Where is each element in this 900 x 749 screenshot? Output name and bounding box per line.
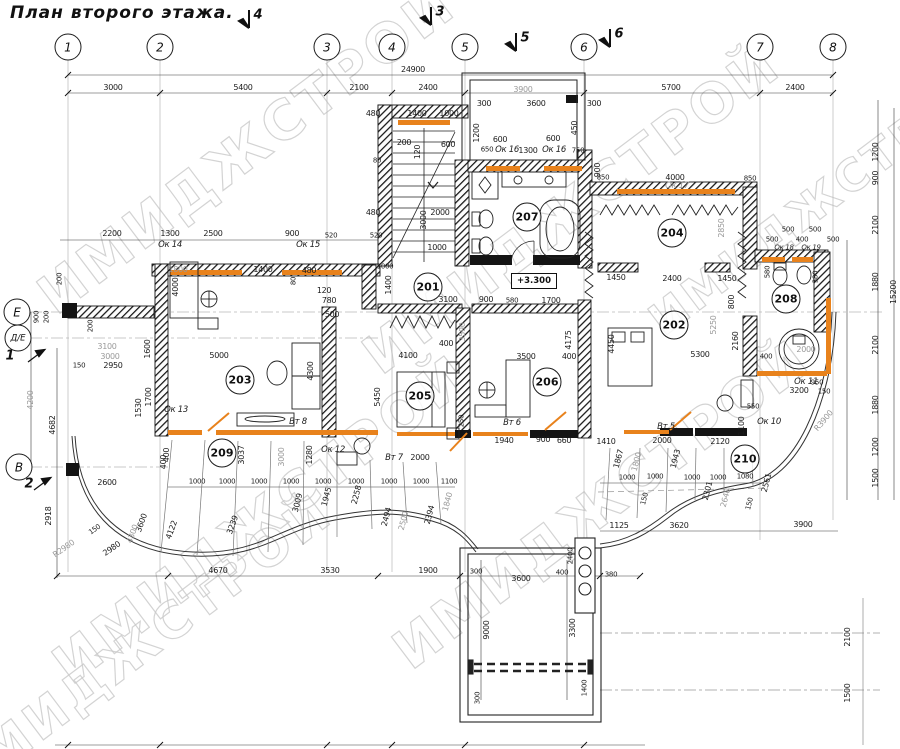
dim-label: 1600 <box>144 339 152 358</box>
dim-label: 2301 <box>702 481 715 502</box>
dim-label: 400 <box>760 354 772 361</box>
dim-label: 9000 <box>483 620 491 639</box>
dim-label: 2561 <box>761 473 774 494</box>
dim-label: 1000 <box>189 479 206 486</box>
dim-label: 4682 <box>49 415 57 434</box>
dim-label: 200 <box>57 273 64 285</box>
dim-label: 2400 <box>662 275 681 283</box>
room-number-202: 202 <box>660 311 689 340</box>
dim-label: 80 <box>373 158 381 165</box>
dim-label: 300 <box>477 100 491 108</box>
dim-label: 5400 <box>233 84 252 92</box>
fixture-label: Вт 6 <box>503 419 521 428</box>
room-number-201: 201 <box>414 273 443 302</box>
section-mark-4: 4 <box>253 8 262 23</box>
dim-label: 900 <box>34 311 41 323</box>
dim-label: 150 <box>640 492 650 506</box>
dim-label: 500 <box>827 237 839 244</box>
dim-label: 1450 <box>717 275 736 283</box>
dim-label: 400 <box>163 448 171 462</box>
dim-label: 5000 <box>209 352 228 360</box>
dim-label: 3239 <box>226 515 240 536</box>
dim-label: 500 <box>325 311 339 319</box>
dim-label: 1410 <box>596 438 615 446</box>
dim-label: 1080 <box>737 474 754 481</box>
dim-label: 1000 <box>619 475 636 482</box>
grid-axis-3: 3 <box>314 34 341 61</box>
dim-label: 1940 <box>494 437 513 445</box>
dim-label: 2850 <box>718 218 726 237</box>
dim-label: 2100 <box>872 215 880 234</box>
dim-label: 3900 <box>513 86 532 94</box>
fixture-label: Ок 13 <box>164 406 188 415</box>
dim-label: 660 <box>557 437 571 445</box>
dim-label: 1000 <box>684 475 701 482</box>
dim-label: 3100 <box>438 296 457 304</box>
fixture-label: Ок 17 <box>665 182 689 191</box>
dim-label: 120 <box>414 145 422 159</box>
dim-label: 4000 <box>172 277 180 296</box>
dim-label: 2200 <box>102 230 121 238</box>
dim-label: 1000 <box>710 475 727 482</box>
dim-label: 250 <box>459 415 466 427</box>
dim-label: 4175 <box>565 330 573 349</box>
room-number-206: 206 <box>533 368 562 397</box>
dim-label: 2160 <box>732 331 740 350</box>
dim-label: 900 <box>536 436 550 444</box>
dim-label: 2500 <box>398 511 411 532</box>
room-number-204: 204 <box>658 219 687 248</box>
dim-label: 4670 <box>208 567 227 575</box>
dim-label: 200 <box>44 311 51 323</box>
dim-label: 1500 <box>844 683 852 702</box>
dim-label: 400 <box>796 237 808 244</box>
dim-label: 450 <box>571 121 579 135</box>
dim-label: 2100 <box>844 627 852 646</box>
dim-label: 3037 <box>238 445 246 464</box>
grid-axis-Е: Е <box>4 299 31 326</box>
room-number-205: 205 <box>406 382 435 411</box>
dim-label: 2918 <box>45 506 53 525</box>
grid-axis-2: 2 <box>147 34 174 61</box>
fixture-label: Ок 18 <box>774 245 793 252</box>
dim-label: 1000 <box>413 479 430 486</box>
dim-label: 1000 <box>251 479 268 486</box>
dim-label: 5250 <box>710 315 718 334</box>
dim-label: R3900 <box>813 409 835 433</box>
dim-label: 1700 <box>145 387 153 406</box>
dim-label: 900 <box>872 171 880 185</box>
dim-label: 1100 <box>441 479 458 486</box>
dim-label: 1800 <box>168 266 187 274</box>
dim-label: 2000 <box>796 346 815 354</box>
dim-label: 150 <box>745 497 755 511</box>
grid-axis-8: 8 <box>820 34 847 61</box>
dim-label: 480 <box>366 110 380 118</box>
dim-label: 1200 <box>872 142 880 161</box>
dim-label: 1200 <box>872 437 880 456</box>
dim-label: 380 <box>813 271 820 283</box>
dim-label: 580 <box>506 298 518 305</box>
dim-label: 1000 <box>219 479 236 486</box>
dim-label: 1000 <box>283 479 300 486</box>
grid-axis-1: 1 <box>55 34 82 61</box>
dim-label: 780 <box>322 297 336 305</box>
dim-label: 1500 <box>872 468 880 487</box>
fixture-label: Ок 11 <box>794 378 818 387</box>
dim-label: 4200 <box>27 390 35 409</box>
dim-label: 2400 <box>418 84 437 92</box>
dim-label: 2394 <box>424 505 437 526</box>
dim-label: 2100 <box>349 84 368 92</box>
dim-label: 1400 <box>385 275 393 294</box>
room-number-207: 207 <box>513 203 542 232</box>
dim-label: 300 <box>587 100 601 108</box>
dim-label: 2400 <box>785 84 804 92</box>
dim-label: 3009 <box>292 493 305 514</box>
dim-label: 200 <box>397 139 411 147</box>
dim-label: 500 <box>782 227 794 234</box>
dim-label: 15200 <box>890 280 898 304</box>
dim-label: 1125 <box>609 522 628 530</box>
fixture-label: Вт 5 <box>657 423 675 432</box>
dim-label: 900 <box>479 296 493 304</box>
dim-label: 1100 <box>738 416 746 435</box>
dim-label: 550 <box>747 404 759 411</box>
dim-label: 5300 <box>690 351 709 359</box>
dim-label: 4300 <box>126 524 140 545</box>
dim-label: 1840 <box>442 492 455 513</box>
grid-axis-4: 4 <box>379 34 406 61</box>
dim-label: 3600 <box>511 575 530 583</box>
dim-label: 2500 <box>203 230 222 238</box>
dim-label: 850 <box>744 176 756 183</box>
dim-label: 300 <box>470 569 482 576</box>
dim-label: 1000 <box>377 264 394 271</box>
dim-label: 2000 <box>410 454 429 462</box>
dim-label: 300 <box>475 692 482 704</box>
labels-layer: 2490030005400210024005700240039003003600… <box>0 0 900 749</box>
dim-label: 4122 <box>165 520 179 541</box>
dim-label: 4450 <box>608 334 616 353</box>
dim-label: 5450 <box>374 387 382 406</box>
dim-label: 1700 <box>541 297 560 305</box>
dim-label: 1000 <box>647 474 664 481</box>
dim-label: 2000 <box>430 209 449 217</box>
dim-label: 4300 <box>307 361 315 380</box>
fixture-label: Ок 19 <box>801 245 820 252</box>
fixture-label: Ок 10 <box>757 418 781 427</box>
fixture-label: Ок 16 <box>542 146 566 155</box>
floor-plan-page: ИМИДЖСТРОЙ ИМИДЖСТРОЙ ИМИДЖСТРОЙ ИМИДЖСТ… <box>0 0 900 749</box>
dim-label: 3000 <box>103 84 122 92</box>
dim-label: 400 <box>556 570 568 577</box>
dim-label: 1900 <box>418 567 437 575</box>
grid-axis-5: 5 <box>452 34 479 61</box>
dim-label: 4100 <box>398 352 417 360</box>
dim-label: 900 <box>285 230 299 238</box>
dim-label: 400 <box>562 353 576 361</box>
dim-label: 1450 <box>606 274 625 282</box>
dim-label: 600 <box>441 141 455 149</box>
dim-label: 150 <box>818 389 830 396</box>
dim-label: 1945 <box>321 487 334 508</box>
dim-label: 2494 <box>381 507 394 528</box>
dim-label: 3100 <box>97 343 116 351</box>
dim-label: 650 <box>481 147 493 154</box>
dim-label: 3000 <box>420 210 428 229</box>
dim-label: 3900 <box>793 521 812 529</box>
dim-label: 120 <box>317 287 331 295</box>
room-number-203: 203 <box>226 366 255 395</box>
fixture-label: Ок 16 <box>495 146 519 155</box>
dim-label: 500 <box>766 237 778 244</box>
fixture-label: Вт 8 <box>289 418 307 427</box>
dim-label: 80 <box>291 277 298 285</box>
dim-label: 5700 <box>661 84 680 92</box>
dim-label: 750 <box>572 148 584 155</box>
dim-label: 150 <box>73 363 85 370</box>
dim-label: 3000 <box>100 353 119 361</box>
dim-label: 1000 <box>439 110 458 118</box>
dim-label: 1300 <box>518 147 537 155</box>
fixture-label: Ок 12 <box>321 446 345 455</box>
dim-label: 2100 <box>872 335 880 354</box>
dim-label: 1800 <box>631 452 644 473</box>
grid-axis-6: 6 <box>571 34 598 61</box>
dim-label: 1400 <box>407 110 426 118</box>
dim-label: 3620 <box>669 522 688 530</box>
dim-label: 1880 <box>872 272 880 291</box>
dim-label: 380 <box>605 572 617 579</box>
dim-label: 2980 <box>102 540 122 558</box>
dim-label: 600 <box>546 135 560 143</box>
section-mark-1: 1 <box>5 349 14 364</box>
dim-label: 1000 <box>315 479 332 486</box>
dim-label: 800 <box>728 295 736 309</box>
fixture-label: Ок 14 <box>158 241 182 250</box>
dim-label: 400 <box>439 340 453 348</box>
dim-label: 1000 <box>381 479 398 486</box>
dim-label: 3200 <box>789 387 808 395</box>
dim-label: 3500 <box>516 353 535 361</box>
dim-label: 2120 <box>710 438 729 446</box>
grid-axis-Д/Е: Д/Е <box>5 325 32 352</box>
section-mark-2: 2 <box>24 477 33 492</box>
dim-label: 1400 <box>582 680 589 697</box>
dim-label: 3530 <box>320 567 339 575</box>
dim-label: 2600 <box>97 479 116 487</box>
dim-label: 1280 <box>306 445 314 464</box>
dim-label: 3600 <box>526 100 545 108</box>
dim-label: 2950 <box>103 362 122 370</box>
dim-label: 150 <box>88 524 102 537</box>
dim-label: 1530 <box>135 398 143 417</box>
dim-label: 2000 <box>652 437 671 445</box>
dim-label: 1880 <box>872 395 880 414</box>
dim-label: 2400 <box>568 548 575 565</box>
grid-axis-7: 7 <box>747 34 774 61</box>
dim-label: 520 <box>325 233 337 240</box>
dim-label: 520 <box>370 233 382 240</box>
section-mark-5: 5 <box>520 31 529 46</box>
fixture-label: Ок 15 <box>296 241 320 250</box>
dim-label: 1200 <box>473 123 481 142</box>
dim-label: 600 <box>493 136 507 144</box>
dim-label: 850 <box>597 175 609 182</box>
section-mark-6: 6 <box>614 27 623 42</box>
dim-label: R2980 <box>52 539 77 560</box>
dim-label: 480 <box>302 267 316 275</box>
dim-label: 2258 <box>351 485 364 506</box>
dim-label: 200 <box>88 320 95 332</box>
dim-label: 1000 <box>427 244 446 252</box>
room-number-208: 208 <box>772 285 801 314</box>
section-mark-3: 3 <box>435 5 444 20</box>
dim-label: 24900 <box>401 66 425 74</box>
fixture-label: Вт 7 <box>385 454 403 463</box>
dim-label: 3300 <box>569 618 577 637</box>
dim-label: 3590 <box>459 322 467 341</box>
room-number-209: 209 <box>208 439 237 468</box>
dim-label: 3000 <box>278 447 286 466</box>
dim-label: 1867 <box>613 449 626 470</box>
dim-label: 500 <box>809 227 821 234</box>
dim-label: 1943 <box>670 449 683 470</box>
dim-label: 2640 <box>720 488 733 509</box>
dim-label: 480 <box>366 209 380 217</box>
dim-label: 1400 <box>253 266 272 274</box>
dim-label: 580 <box>765 266 772 278</box>
room-number-210: 210 <box>731 445 760 474</box>
dim-label: 1300 <box>160 230 179 238</box>
